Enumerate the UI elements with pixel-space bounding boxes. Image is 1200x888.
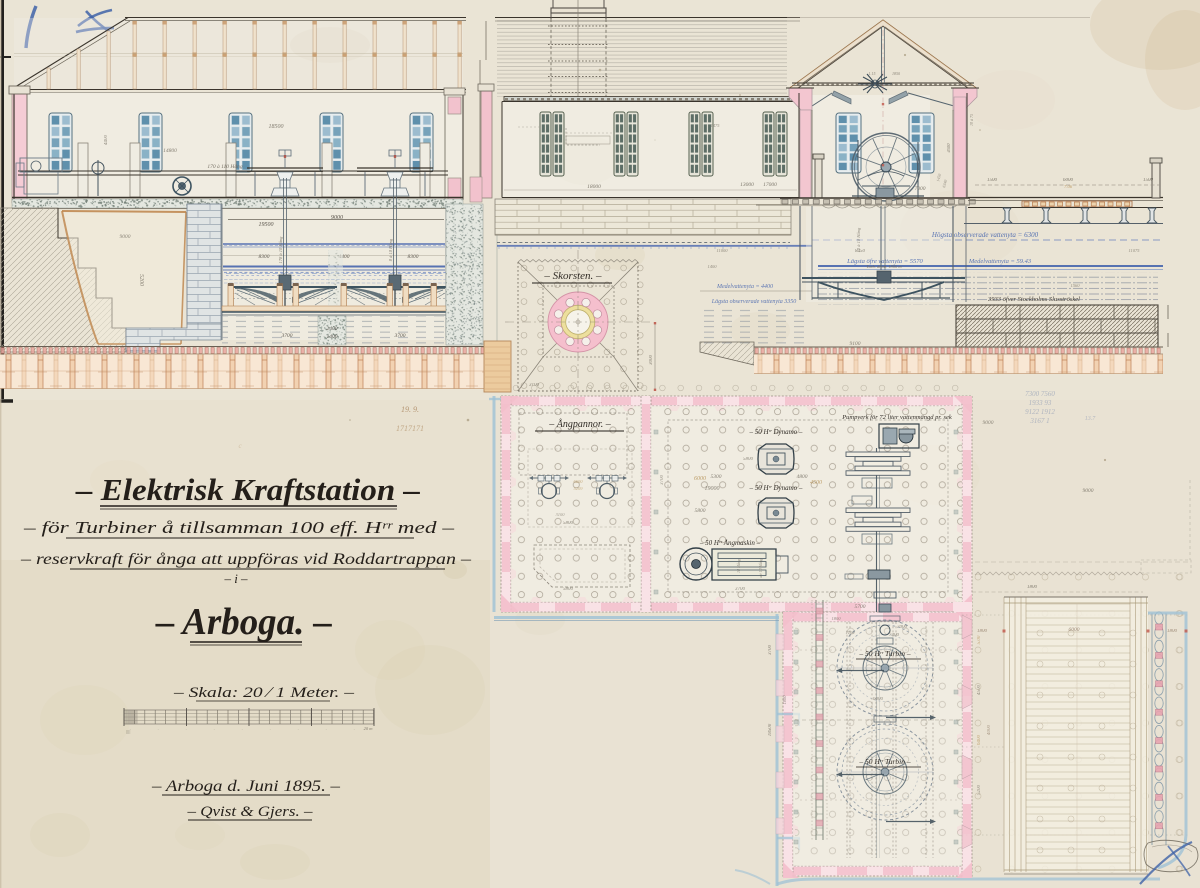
svg-text:5800: 5800	[743, 457, 754, 462]
svg-text:5300: 5300	[711, 474, 722, 480]
svg-text:3700: 3700	[281, 333, 293, 339]
svg-text:1933 93: 1933 93	[1029, 399, 1052, 407]
svg-text:– 50 Hʳʳ Dynamo –: – 50 Hʳʳ Dynamo –	[749, 484, 803, 492]
svg-text:3700: 3700	[768, 645, 773, 656]
svg-text:4500: 4500	[810, 479, 822, 486]
svg-text:5700: 5700	[855, 604, 866, 610]
svg-text:– Elektrisk Kraftstation –: – Elektrisk Kraftstation –	[75, 472, 421, 507]
svg-text:·: ·	[269, 727, 270, 732]
svg-text:3100: 3100	[556, 512, 566, 517]
svg-text:– 50 Hʳʳ Turbin –: – 50 Hʳʳ Turbin –	[858, 757, 911, 766]
svg-text:6600: 6600	[574, 479, 584, 484]
svg-text:19. 9.: 19. 9.	[401, 405, 419, 414]
svg-text:1800: 1800	[782, 695, 787, 705]
svg-text:18500: 18500	[768, 723, 773, 736]
svg-text:13000: 13000	[740, 182, 754, 188]
svg-text:att 10 Hång: att 10 Hång	[758, 558, 763, 577]
svg-text:19500: 19500	[259, 222, 274, 228]
svg-text:7400: 7400	[889, 633, 900, 638]
svg-text:8 à 10 Hång: 8 à 10 Hång	[388, 238, 393, 261]
svg-text:3700: 3700	[735, 587, 746, 592]
svg-text:5.00: 5.00	[977, 635, 982, 644]
svg-text:18500: 18500	[269, 124, 284, 130]
svg-text:– 50 Hʳʳ Ångmaskin –: – 50 Hʳʳ Ångmaskin –	[699, 539, 761, 547]
svg-text:6000: 6000	[873, 697, 884, 702]
svg-text:17000: 17000	[763, 182, 777, 188]
svg-text:1400: 1400	[327, 333, 338, 340]
svg-text:9100: 9100	[850, 341, 861, 347]
svg-text:1700: 1700	[846, 630, 856, 635]
svg-text:·: ·	[353, 727, 354, 732]
svg-text:8300: 8300	[259, 254, 270, 260]
svg-text:4400: 4400	[104, 135, 109, 146]
svg-text:5800: 5800	[563, 521, 574, 526]
svg-text:1500: 1500	[987, 178, 998, 183]
svg-text:Medelvattenyta = 4400: Medelvattenyta = 4400	[716, 283, 773, 290]
svg-text:170 à 110 Hång: 170 à 110 Hång	[207, 163, 242, 170]
svg-text:20 m: 20 m	[364, 726, 374, 731]
svg-text:6400: 6400	[977, 735, 982, 746]
svg-text:1560: 1560	[1071, 283, 1081, 288]
svg-text:18000: 18000	[587, 184, 601, 190]
svg-text:1800: 1800	[1167, 629, 1178, 634]
svg-text:– Skala: 20 ∕ 1 Meter. –: – Skala: 20 ∕ 1 Meter. –	[173, 685, 355, 701]
svg-text:1850: 1850	[892, 71, 900, 76]
svg-text:Pumpverk för 72 liter vattenmä: Pumpverk för 72 liter vattenmängd pr. se…	[841, 414, 952, 421]
svg-text:3700: 3700	[394, 333, 406, 339]
svg-text:1475: 1475	[711, 123, 721, 128]
svg-text:4800: 4800	[797, 473, 808, 480]
svg-text:·: ·	[297, 727, 298, 732]
svg-text:– Arboga d. Juni 1895. –: – Arboga d. Juni 1895. –	[151, 778, 341, 795]
svg-text:9000: 9000	[983, 420, 994, 426]
svg-text:– Arboga. –: – Arboga. –	[155, 601, 332, 643]
svg-text:||||: ||||	[126, 729, 131, 734]
svg-text:– Skorsten. –: – Skorsten. –	[543, 270, 602, 282]
svg-text:7000: 7000	[915, 186, 926, 192]
svg-text:1800: 1800	[1027, 585, 1038, 590]
svg-text:9000: 9000	[120, 234, 131, 240]
svg-text:5209: 5209	[574, 486, 584, 491]
svg-text:Turb. diam. 1800 m: Turb. diam. 1800 m	[866, 264, 902, 269]
svg-text:9000: 9000	[331, 215, 343, 221]
svg-text:4000: 4000	[987, 725, 992, 736]
svg-text:6000: 6000	[1069, 627, 1080, 633]
svg-text:1500: 1500	[1143, 178, 1154, 183]
svg-text:3000: 3000	[649, 355, 654, 366]
svg-text:3933 öfver Stockholms Slusströ: 3933 öfver Stockholms Slusströskel	[987, 296, 1080, 303]
svg-text:178 à 10 Hång: 178 à 10 Hång	[278, 236, 283, 264]
svg-text:3167 1: 3167 1	[1029, 417, 1049, 425]
svg-text:6000: 6000	[1063, 178, 1074, 183]
svg-text:– Ångpannor. –: – Ångpannor. –	[548, 418, 611, 430]
svg-text:– i –: – i –	[223, 571, 248, 586]
svg-text:·: ·	[325, 727, 326, 732]
svg-text:3700: 3700	[660, 475, 665, 486]
svg-text:5800: 5800	[695, 508, 706, 514]
svg-text:9122 1912: 9122 1912	[1025, 408, 1055, 416]
svg-text:– 50 Hʳʳ Turbin –: – 50 Hʳʳ Turbin –	[858, 649, 911, 658]
svg-text:1.15: 1.15	[869, 71, 876, 76]
svg-text:1800: 1800	[832, 616, 842, 621]
svg-text:19000: 19000	[705, 486, 720, 492]
svg-text:8300: 8300	[408, 254, 419, 260]
svg-text:11075: 11075	[1129, 248, 1141, 253]
svg-text:7000: 7000	[897, 625, 908, 630]
svg-text:Högsta observerade vattenyta =: Högsta observerade vattenyta = 6300	[931, 231, 1039, 239]
svg-text:·: ·	[185, 727, 186, 732]
svg-text:18 Hång: 18 Hång	[736, 559, 741, 573]
svg-text:– 50 Hʳʳ Dynamo –: – 50 Hʳʳ Dynamo –	[749, 428, 803, 436]
svg-text:8450: 8450	[855, 249, 866, 254]
svg-text:·: ·	[157, 727, 158, 732]
svg-text:9000: 9000	[1083, 488, 1094, 494]
svg-text:5200: 5200	[138, 274, 144, 286]
svg-text:– Qvist & Gjers. –: – Qvist & Gjers. –	[186, 804, 313, 820]
svg-text:Medelvattenyta = 59.43: Medelvattenyta = 59.43	[968, 258, 1032, 265]
svg-text:6000: 6000	[694, 476, 706, 482]
svg-text:– reservkraft för ånga att upp: – reservkraft för ånga att uppföras vid …	[20, 551, 472, 568]
svg-text:1800: 1800	[977, 629, 988, 634]
svg-text:·: ·	[213, 727, 214, 732]
svg-text:2400: 2400	[327, 325, 338, 332]
svg-text:10 à 75: 10 à 75	[969, 114, 974, 126]
svg-text:Lägsta observerade vattenyta 3: Lägsta observerade vattenyta 3350	[711, 299, 797, 305]
svg-text:1400: 1400	[708, 264, 718, 269]
svg-text:1717171: 1717171	[396, 424, 424, 433]
svg-text:7300 7560: 7300 7560	[1025, 390, 1055, 398]
svg-text:5800: 5800	[563, 587, 574, 592]
svg-text:11000: 11000	[717, 248, 729, 253]
svg-text:14800: 14800	[163, 147, 177, 154]
svg-text:– för Turbiner å tillsamman 10: – för Turbiner å tillsamman 100 eff. Hʳʳ…	[23, 518, 455, 537]
svg-text:·: ·	[241, 727, 242, 732]
svg-text:4500: 4500	[946, 143, 951, 153]
svg-text:7.06: 7.06	[1064, 184, 1073, 189]
svg-text:13.7: 13.7	[1085, 416, 1097, 422]
